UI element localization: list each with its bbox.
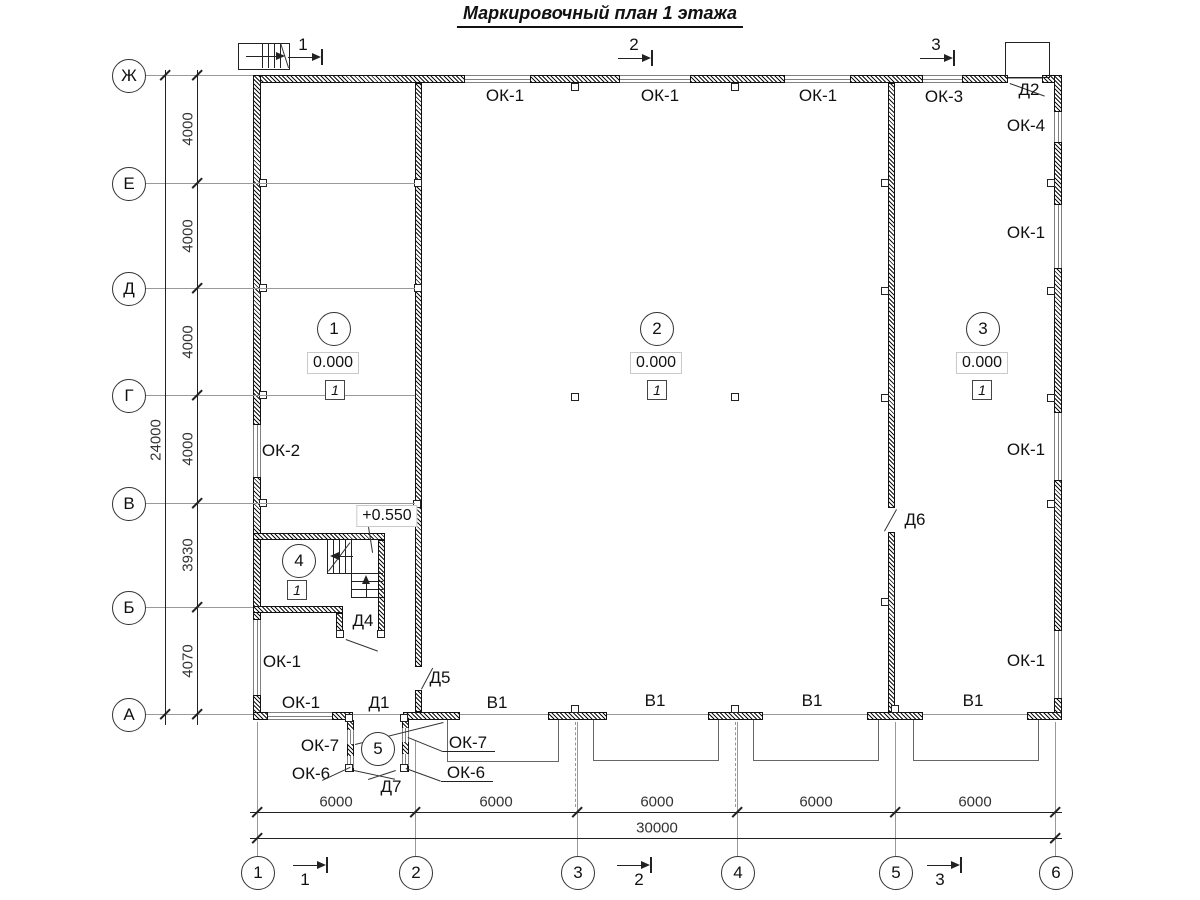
axis-line-row	[144, 503, 415, 504]
axis-label: Е	[123, 174, 134, 194]
dim-row: 4000	[180, 432, 197, 465]
section-arrow-head	[951, 861, 960, 869]
gate-label: В1	[802, 691, 823, 711]
room-number: 5	[361, 732, 395, 766]
pilaster	[731, 83, 739, 91]
section-arrow-bar	[650, 857, 652, 873]
pilaster	[1047, 179, 1055, 187]
section-arrow-bar	[321, 49, 323, 65]
gate-apron	[913, 720, 1039, 761]
room-elevation: 0.000	[307, 352, 359, 374]
axis-label: Б	[123, 598, 134, 618]
door-d4-swing	[346, 639, 378, 652]
room-finish-type: 1	[647, 380, 667, 400]
window-ok2	[253, 425, 261, 477]
door-label: Д2	[1019, 80, 1040, 100]
dim-line-horizontal-outer	[250, 838, 1062, 839]
wall-segment	[867, 712, 923, 720]
window-ok1	[253, 620, 261, 695]
gate-apron	[753, 720, 879, 761]
axis-label: А	[123, 705, 134, 725]
axis-circle-row: Г	[112, 379, 146, 413]
axis-line-row	[144, 288, 415, 289]
stair-landing-edge	[327, 573, 383, 574]
section-mark-label: 1	[300, 870, 309, 890]
axis-circle-col: 3	[561, 856, 595, 890]
window-ok1	[1054, 413, 1062, 480]
section-mark-label: 2	[629, 35, 638, 55]
window-label: ОК-4	[1007, 116, 1045, 136]
dim-row: 4000	[180, 219, 197, 252]
window-label: ОК-6	[292, 764, 330, 784]
stair-arrow-head	[330, 552, 339, 560]
door-label: Д7	[381, 777, 402, 797]
pilaster	[881, 287, 889, 295]
wall-segment	[1027, 712, 1062, 720]
axis-circle-row: В	[112, 487, 146, 521]
wall-segment	[708, 712, 763, 720]
axis-line-row	[144, 395, 415, 396]
room-number-label: 1	[329, 319, 338, 339]
stair-side	[351, 573, 352, 598]
door-label: Д6	[905, 510, 926, 530]
leader-underline	[443, 751, 495, 752]
dim-row: 4070	[180, 644, 197, 677]
leader-underline	[441, 781, 493, 782]
axis-label: В	[123, 494, 134, 514]
window-label: ОК-7	[449, 733, 487, 753]
floor-plan-canvas: Маркировочный план 1 этажа	[0, 0, 1200, 900]
gate-centerline	[575, 722, 576, 807]
leader-line	[408, 737, 444, 752]
window-label: ОК-1	[263, 652, 301, 672]
axis-label: 1	[253, 863, 262, 883]
interior-wall-axis2	[415, 83, 422, 667]
window-ok1	[465, 75, 530, 83]
gate-label: В1	[487, 693, 508, 713]
dim-col: 6000	[640, 794, 673, 811]
dim-line-horizontal-inner	[250, 812, 1062, 813]
gate-v1-opening	[607, 714, 708, 715]
axis-circle-row: Б	[112, 591, 146, 625]
stair-arrow-shaft	[366, 583, 367, 597]
window-label: ОК-1	[1007, 440, 1045, 460]
dim-line-vertical-inner	[197, 70, 198, 725]
gate-apron	[593, 720, 719, 761]
window-label: ОК-1	[1007, 651, 1045, 671]
axis-circle-col: 4	[721, 856, 755, 890]
section-arrow-head	[944, 54, 953, 62]
leader-line	[884, 509, 897, 531]
axis-circle-row: Д	[112, 272, 146, 306]
dim-col: 6000	[958, 794, 991, 811]
pilaster	[731, 705, 739, 713]
room-number-label: 4	[294, 551, 303, 571]
room-number-label: 2	[652, 319, 661, 339]
dim-row: 4000	[180, 112, 197, 145]
dim-row: 4000	[180, 325, 197, 358]
axis-line-col	[577, 722, 578, 856]
stair-landing-elevation: +0.550	[356, 505, 417, 527]
window-label: ОК-1	[282, 693, 320, 713]
wall-segment	[253, 75, 261, 425]
door-label: Д5	[430, 668, 451, 688]
axis-label: 4	[733, 863, 742, 883]
entry-arrow-head	[276, 52, 285, 60]
axis-label: Д	[123, 279, 135, 299]
room-elevation: 0.000	[956, 352, 1008, 374]
pilaster	[881, 179, 889, 187]
door-jamb	[377, 630, 385, 638]
column	[731, 393, 739, 401]
window-label: ОК-2	[262, 441, 300, 461]
wall-segment	[253, 75, 465, 83]
room-number-label: 3	[978, 319, 987, 339]
wall-segment	[850, 75, 923, 83]
door-d2-opening	[1008, 78, 1042, 79]
door-label: Д1	[369, 693, 390, 713]
axis-circle-col: 2	[399, 856, 433, 890]
gate-label: В1	[963, 691, 984, 711]
section-arrow-bar	[326, 857, 328, 873]
window-ok1	[1054, 205, 1062, 268]
door-d1-opening	[353, 714, 403, 715]
section-arrow-head	[642, 54, 651, 62]
gate-v1-opening	[460, 714, 548, 715]
room-number: 4	[282, 544, 316, 578]
axis-circle-row: Ж	[112, 59, 146, 93]
dim-line-vertical-outer	[165, 70, 166, 725]
dim-col: 6000	[799, 794, 832, 811]
dim-row-total: 24000	[148, 419, 165, 461]
axis-circle-col: 1	[241, 856, 275, 890]
pilaster	[881, 394, 889, 402]
window-ok4	[1054, 112, 1062, 142]
wall-segment	[690, 75, 785, 83]
axis-line-col	[895, 722, 896, 856]
drawing-title: Маркировочный план 1 этажа	[457, 3, 743, 28]
room-number-label: 5	[373, 739, 382, 759]
axis-label: 2	[411, 863, 420, 883]
pilaster	[881, 598, 889, 606]
pilaster	[571, 83, 579, 91]
door-jamb	[336, 630, 344, 638]
window-ok1	[620, 75, 690, 83]
interior-wall-axis5	[888, 532, 895, 712]
dim-row: 3930	[180, 538, 197, 571]
section-mark-label: 3	[931, 35, 940, 55]
axis-label: 5	[891, 863, 900, 883]
axis-line-col	[737, 722, 738, 856]
axis-line-row	[144, 183, 415, 184]
window-ok7	[347, 730, 354, 744]
pilaster	[414, 179, 422, 187]
section-mark-label: 3	[935, 870, 944, 890]
axis-circle-row: А	[112, 698, 146, 732]
stair-tread	[327, 540, 328, 573]
window-label: ОК-7	[301, 736, 339, 756]
section-mark-label: 1	[298, 35, 307, 55]
section-arrow-bar	[651, 50, 653, 66]
axis-circle-col: 5	[879, 856, 913, 890]
wall-segment	[530, 75, 620, 83]
gate-v1-opening	[923, 714, 1027, 715]
section-arrow-head	[641, 861, 650, 869]
door-label: Д4	[353, 611, 374, 631]
window-label: ОК-3	[925, 87, 963, 107]
pilaster	[414, 284, 422, 292]
interior-wall-axis2-stub	[415, 690, 422, 712]
wall-segment	[1054, 268, 1062, 413]
axis-circle-row: Е	[112, 167, 146, 201]
wall-segment	[1054, 75, 1062, 112]
pilaster	[1047, 287, 1055, 295]
room-finish-type: 1	[325, 380, 345, 400]
door-jamb	[400, 714, 408, 722]
window-ok1	[268, 712, 332, 720]
window-label: ОК-1	[641, 86, 679, 106]
axis-line-row	[144, 607, 253, 608]
gate-centerline	[735, 722, 736, 807]
gate-v1-opening	[763, 714, 867, 715]
wall-segment	[1054, 142, 1062, 205]
stair-arrow-head	[362, 575, 370, 584]
stair-tread	[351, 597, 383, 598]
axis-label: Г	[124, 386, 133, 406]
section-mark-label: 2	[634, 870, 643, 890]
axis-circle-col: 6	[1039, 856, 1073, 890]
pilaster	[1047, 500, 1055, 508]
stair-room-wall	[253, 606, 343, 613]
room-number: 2	[640, 312, 674, 346]
room-elevation: 0.000	[630, 352, 682, 374]
leader-line	[406, 768, 441, 782]
interior-wall-axis5	[888, 83, 895, 508]
dim-col: 6000	[479, 794, 512, 811]
section-arrow-bar	[953, 50, 955, 66]
window-ok1	[785, 75, 850, 83]
axis-line-row	[144, 714, 253, 715]
window-ok1	[1054, 631, 1062, 698]
stair-room-wall	[253, 533, 385, 540]
pilaster	[571, 705, 579, 713]
axis-label: 3	[573, 863, 582, 883]
axis-label: 6	[1051, 863, 1060, 883]
wall-segment	[253, 712, 268, 720]
pilaster	[1047, 394, 1055, 402]
room-finish-type: 1	[972, 380, 992, 400]
column	[571, 393, 579, 401]
door-jamb	[345, 714, 353, 722]
wall-segment	[1054, 480, 1062, 631]
window-label: ОК-1	[1007, 223, 1045, 243]
dim-col: 6000	[319, 794, 352, 811]
room-number: 1	[317, 312, 351, 346]
section-arrow-head	[312, 53, 321, 61]
gate-label: В1	[645, 691, 666, 711]
window-label: ОК-1	[486, 86, 524, 106]
stair-tread	[351, 589, 383, 590]
axis-line-row	[144, 75, 253, 76]
entry-arrow-shaft	[246, 56, 276, 57]
window-label: ОК-6	[447, 763, 485, 783]
window-ok3	[923, 75, 962, 83]
room-number: 3	[966, 312, 1000, 346]
wall-segment	[548, 712, 607, 720]
pilaster	[891, 705, 899, 713]
room-finish-type: 1	[287, 580, 307, 600]
stair-arrow-shaft	[338, 556, 353, 557]
entrance-porch	[1005, 42, 1050, 78]
wall-segment	[403, 712, 460, 720]
section-arrow-head	[317, 861, 326, 869]
axis-label: Ж	[121, 66, 137, 86]
window-label: ОК-1	[799, 86, 837, 106]
dim-col-total: 30000	[636, 820, 678, 837]
wall-segment	[962, 75, 1008, 83]
section-arrow-bar	[960, 857, 962, 873]
